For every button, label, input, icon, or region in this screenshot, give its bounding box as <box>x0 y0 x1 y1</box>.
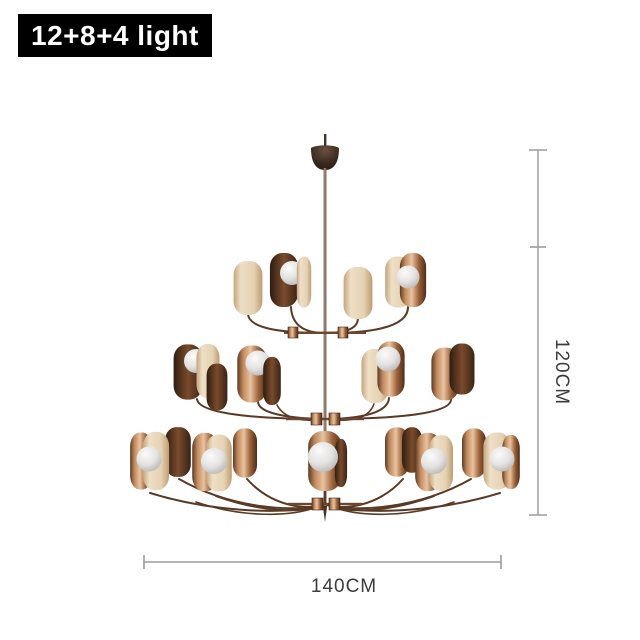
chandelier <box>130 134 520 522</box>
glass-bulb <box>308 442 338 472</box>
rod-finial <box>323 506 327 522</box>
ceiling-canopy <box>311 134 339 170</box>
glass-bulb <box>137 447 162 472</box>
glass-bulb <box>376 347 401 372</box>
tier-bottom <box>130 427 520 514</box>
shade-plate <box>462 428 486 477</box>
glass-bulb <box>201 448 227 474</box>
width-dimension-label: 140CM <box>311 576 377 597</box>
tier-middle-crossbar <box>286 418 364 420</box>
tier-middle-hub-block <box>329 413 340 425</box>
chandelier-illustration: 120CM 140CM <box>0 0 640 640</box>
tier-bottom-crossbar <box>288 503 362 505</box>
tier-middle-hub-block <box>311 413 322 425</box>
height-dimension: 120CM <box>529 150 572 515</box>
product-image: 12+8+4 light <box>0 0 640 640</box>
shade-plate <box>344 267 373 319</box>
shade-plate <box>263 357 281 405</box>
tier-bottom-hub-block <box>312 498 323 510</box>
shade-plate <box>233 428 257 477</box>
tier-top-arms <box>248 307 408 333</box>
shade-plate <box>450 344 475 395</box>
tier-top-hub-block <box>338 327 348 338</box>
shade-plate <box>297 257 311 308</box>
glass-bulb <box>490 447 515 472</box>
tier-top <box>234 253 427 338</box>
glass-bulb <box>397 266 420 289</box>
canopy-cup <box>311 145 339 170</box>
width-dimension: 140CM <box>144 555 501 597</box>
tier-top-hub-block <box>288 327 298 338</box>
shade-plate <box>207 364 228 411</box>
height-dimension-label: 120CM <box>551 339 572 405</box>
tier-bottom-hub-block <box>329 498 340 510</box>
shade-plate <box>234 261 263 315</box>
glass-bulb <box>421 448 447 474</box>
